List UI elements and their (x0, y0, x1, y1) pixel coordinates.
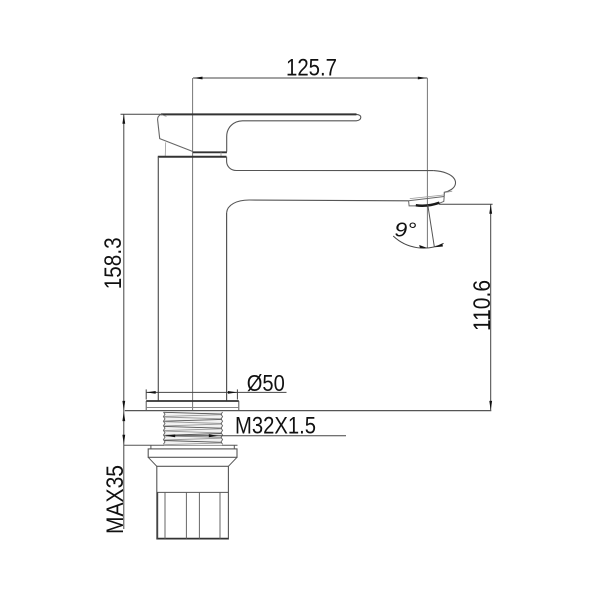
svg-text:Ø50: Ø50 (247, 370, 285, 396)
svg-text:110.6: 110.6 (469, 280, 496, 331)
svg-text:158.3: 158.3 (100, 237, 127, 289)
svg-text:9°: 9° (395, 220, 417, 242)
svg-text:MAX35: MAX35 (102, 465, 129, 534)
svg-text:M32X1.5: M32X1.5 (235, 412, 316, 439)
svg-text:125.7: 125.7 (286, 55, 337, 82)
